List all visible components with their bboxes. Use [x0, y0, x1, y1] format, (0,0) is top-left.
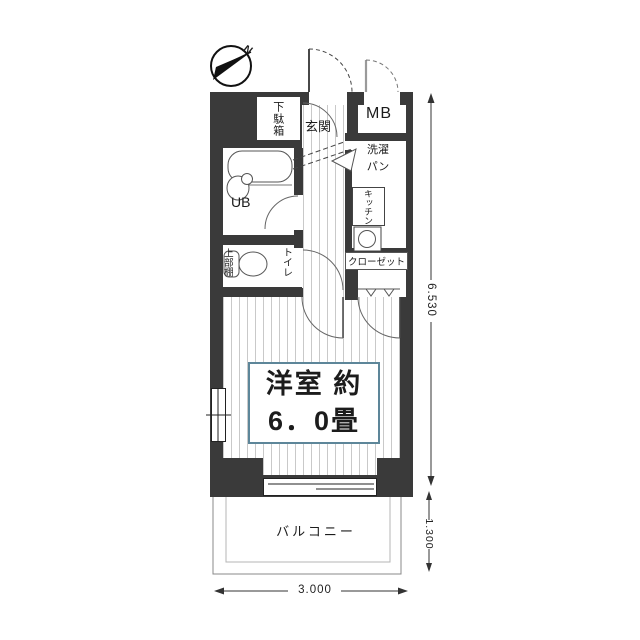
entrance-label: 玄関	[305, 119, 331, 135]
sliding-door	[264, 479, 377, 496]
kitchen-label: キッチン	[362, 189, 375, 225]
dimension-total-depth: 6.530	[425, 282, 437, 318]
closet-door	[358, 289, 400, 338]
dimension-balcony-depth: 1.300	[423, 516, 435, 552]
washer-pan-label: 洗濯 パン	[352, 142, 404, 175]
unit-bath-label: UB	[231, 194, 250, 212]
dimension-width: 3.000	[288, 584, 342, 596]
plan-linework	[0, 0, 640, 640]
bath-door-swing-arc	[265, 196, 298, 229]
stove-burner-icon	[354, 227, 381, 251]
kitchen-counter: キッチン	[352, 187, 385, 226]
meter-box-door	[366, 60, 398, 92]
main-room-label: 洋室 約6．0畳	[248, 362, 380, 444]
entrance-door	[309, 49, 352, 92]
window	[206, 389, 231, 442]
shoe-cabinet-label: 下駄箱	[270, 101, 284, 137]
meter-box-label: MB	[366, 104, 392, 124]
floor-plan: N 下駄箱 玄関 MB 洗濯 パン UB キッチン 上部棚 トイレ クローゼット…	[0, 0, 640, 640]
room-door	[302, 297, 343, 338]
toilet-label: トイレ	[279, 247, 292, 277]
balcony-label: バルコニー	[268, 524, 364, 540]
toilet-door-swing-arc	[303, 250, 343, 290]
entrance-step	[293, 142, 356, 171]
closet-label: クローゼット	[345, 252, 408, 270]
upper-shelf-label: 上部棚	[221, 248, 233, 277]
